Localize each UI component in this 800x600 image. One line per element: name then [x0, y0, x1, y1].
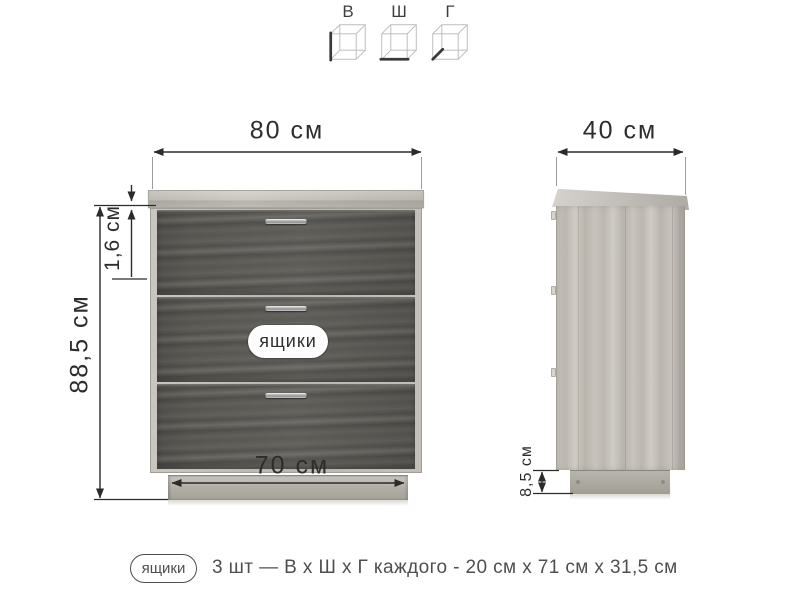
side-slide-mark — [551, 211, 556, 220]
legend-depth-label: Г — [445, 2, 454, 22]
cube-height-icon — [328, 22, 368, 62]
front-width-dimension: 80 см — [250, 117, 324, 146]
drawers-badge: ящики — [248, 325, 328, 358]
legend-height-label: В — [342, 2, 353, 22]
front-height-dimension: 88,5 см — [66, 294, 95, 393]
side-slide-mark — [551, 368, 556, 377]
legend-width: Ш — [377, 2, 421, 62]
cube-width-icon — [379, 22, 419, 62]
drawer-handle — [265, 219, 307, 224]
cube-depth-icon — [430, 22, 470, 62]
drawer-handle — [265, 306, 307, 311]
front-top-panel — [148, 190, 424, 208]
plinth-screw — [661, 480, 665, 484]
top-thickness-dimension: 1,6 см — [101, 205, 125, 271]
legend-width-label: Ш — [391, 2, 407, 22]
plinth-screw — [576, 480, 580, 484]
furniture-dimension-diagram: В Ш Г — [0, 0, 800, 600]
legend-depth: Г — [428, 2, 472, 62]
side-depth-dimension: 40 см — [583, 117, 657, 146]
side-panel — [556, 206, 685, 470]
plinth-height-dimension: 8,5 см — [518, 445, 536, 497]
side-plinth-reflection — [570, 494, 670, 500]
caption-text: 3 шт — В х Ш х Г каждого - 20 см х 71 см… — [212, 557, 678, 579]
side-slide-mark — [551, 286, 556, 295]
plinth-width-dimension: 70 см — [255, 452, 329, 481]
legend-height: В — [326, 2, 370, 62]
caption-drawers-badge: ящики — [130, 554, 197, 583]
drawer-top — [157, 211, 415, 295]
drawer-handle — [265, 393, 307, 398]
side-plinth — [570, 470, 670, 494]
front-plinth-reflection — [168, 500, 408, 506]
